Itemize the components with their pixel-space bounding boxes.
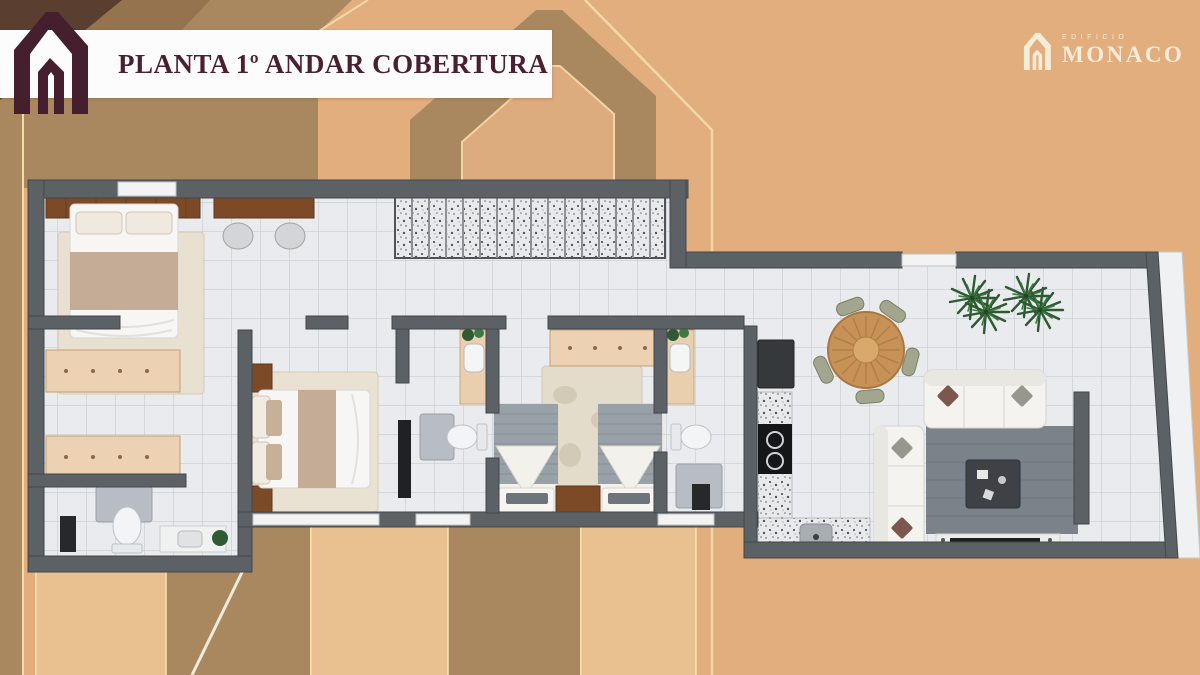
pillow-tan — [266, 400, 282, 436]
window-sill — [253, 514, 379, 525]
desk-chair — [223, 223, 253, 249]
toilet-tank — [477, 424, 487, 450]
sofa-side — [874, 426, 924, 548]
wall-bed3 — [654, 329, 667, 413]
wall-bottom-right — [744, 542, 1168, 558]
blanket-band — [298, 390, 336, 488]
toilet-tank — [671, 424, 681, 450]
cabinet-dark — [60, 516, 76, 552]
brand-text: EDIFICIO MONACO — [1062, 34, 1184, 68]
nightstand — [556, 486, 600, 514]
toilet — [113, 507, 141, 545]
terrace-door-sill — [902, 254, 956, 266]
window-sill — [658, 514, 714, 525]
scene-canvas — [0, 0, 1200, 675]
brand-tagline: EDIFICIO — [1062, 34, 1184, 41]
wall-hall — [392, 316, 506, 329]
single-bed-right — [598, 404, 662, 514]
pillow-tan — [266, 444, 282, 480]
drain — [813, 534, 819, 540]
staircase — [395, 190, 665, 258]
wall-bottom-left — [28, 556, 252, 572]
background-gold-edge — [22, 95, 24, 675]
wall-bath1 — [486, 329, 499, 413]
plant — [667, 329, 679, 341]
wall-leg — [396, 329, 409, 383]
brand-name: MONACO — [1062, 42, 1184, 68]
tv-panel — [398, 420, 411, 498]
pillow — [126, 212, 172, 234]
wall-top-right-a — [686, 252, 902, 268]
single-bed-left — [494, 404, 558, 514]
wall-left — [28, 180, 44, 572]
plant — [462, 329, 474, 341]
wall-bath-master — [28, 474, 186, 487]
sofa-long — [924, 370, 1046, 428]
dining-table — [828, 312, 904, 388]
page-title: PLANTA 1º ANDAR COBERTURA — [118, 30, 548, 98]
wall-hall-right — [548, 316, 744, 329]
window-sill — [118, 182, 176, 196]
sink — [464, 344, 484, 372]
refrigerator — [758, 340, 794, 388]
wall-stub — [306, 316, 348, 329]
sink — [670, 344, 690, 372]
toilet — [681, 425, 711, 449]
wall-living-stub — [1074, 392, 1089, 524]
wall-top-right-b — [956, 252, 1152, 268]
sink — [178, 531, 202, 547]
wall-stub — [28, 316, 120, 329]
window-sill — [416, 514, 470, 525]
dining-chair — [855, 389, 884, 404]
background-left-band — [0, 95, 22, 675]
pillow — [76, 212, 122, 234]
wall-bed3 — [654, 452, 667, 513]
blanket-band — [70, 252, 178, 310]
wall-bath1 — [486, 458, 499, 513]
wall-kitchen — [744, 326, 757, 556]
plant — [212, 530, 228, 546]
coffee-table — [966, 460, 1020, 508]
toilet — [447, 425, 477, 449]
desk-chair — [275, 223, 305, 249]
arch-logo-icon — [6, 4, 94, 114]
wall-connector — [670, 180, 686, 268]
brand-logo: EDIFICIO MONACO — [1020, 24, 1190, 76]
brand-arch-icon — [1020, 30, 1054, 70]
floor-plan-poster: PLANTA 1º ANDAR COBERTURA EDIFICIO MONAC… — [0, 0, 1200, 675]
cabinet-dark — [692, 484, 710, 510]
toilet-tank — [112, 544, 142, 553]
